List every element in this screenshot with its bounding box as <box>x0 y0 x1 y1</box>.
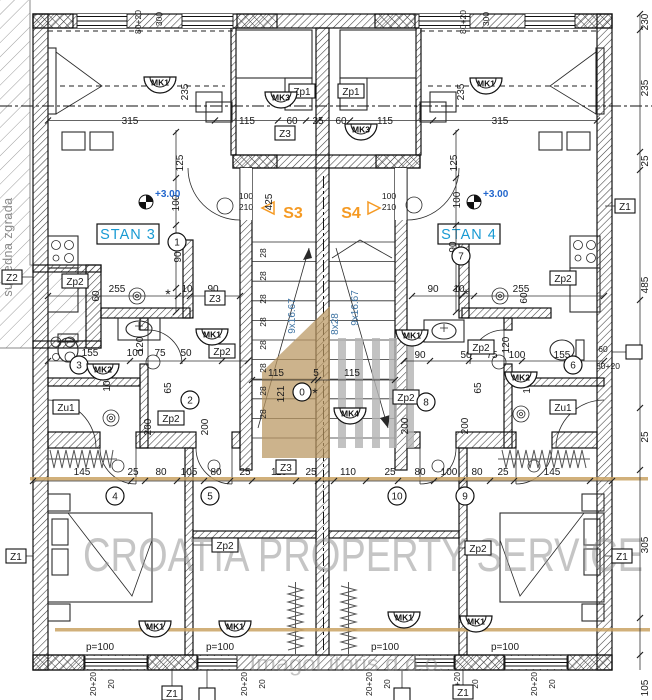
dim-label: 115 <box>377 116 393 127</box>
dim-label: 235 <box>180 83 191 100</box>
tag-text: Zu1 <box>554 403 572 414</box>
circled-number: 1 <box>168 233 186 251</box>
dim-label: 25 <box>239 467 251 478</box>
stair-id-s3: S3 <box>283 205 303 222</box>
circled-number: 2 <box>181 391 199 409</box>
number-text: 4 <box>112 492 118 503</box>
dim-label: 305 <box>640 536 651 553</box>
dim-label: 50 <box>180 348 192 359</box>
tag-text: Z2 <box>6 273 18 284</box>
dim-label: 200 <box>400 417 411 434</box>
dim-label: 9x16.67 <box>350 290 361 326</box>
tag-text: Zp2 <box>216 541 234 552</box>
boxed-label: Z3 <box>205 291 225 305</box>
tag-text: Zp2 <box>554 274 572 285</box>
dim-label: 200 <box>200 418 211 435</box>
circled-number: 6 <box>564 356 582 374</box>
number-text: 9 <box>462 492 468 503</box>
dim-label: 105 <box>640 679 651 696</box>
dim-label: 80+20 <box>596 361 620 371</box>
boxed-label: Zp2 <box>550 271 576 285</box>
mk-text: MK1 <box>477 79 495 89</box>
dim-label: 145 <box>544 467 561 478</box>
dim-label: 125 <box>175 154 186 171</box>
tag-text: Z3 <box>209 294 221 305</box>
dim-label: 28 <box>258 271 268 281</box>
boxed-label: Zp1 <box>338 84 364 98</box>
dim-label: 210 <box>239 202 253 212</box>
tag-text: Z1 <box>619 202 631 213</box>
dim-label: 28 <box>258 248 268 258</box>
tag-text: Zp2 <box>213 347 231 358</box>
boxed-label: Z3 <box>276 460 296 474</box>
mk-text: MK3 <box>352 125 370 135</box>
mk-text: MK4 <box>341 409 359 419</box>
level-text: +3.00 <box>483 189 509 200</box>
number-text: 8 <box>423 398 429 409</box>
dim-label: 80 <box>210 467 222 478</box>
circled-number: 4 <box>106 487 124 505</box>
watermark-sub: ImagoLitoris d.o.o. <box>250 651 445 676</box>
dim-label: 25 <box>384 467 396 478</box>
dim-label: 200 <box>460 417 471 434</box>
door-opening <box>395 168 407 220</box>
dim-label: 9x16.67 <box>287 298 298 334</box>
boxed-label: Zp2 <box>212 538 238 552</box>
boxed-label: Z1 <box>162 686 182 700</box>
porch-wall-left <box>231 28 236 155</box>
mk-text: MK1 <box>151 78 169 88</box>
circled-number: 3 <box>70 356 88 374</box>
number-text: 0 <box>299 388 305 399</box>
boxed-label: Z1 <box>612 549 632 563</box>
dim-label: 120 <box>501 336 512 353</box>
dim-label: 115 <box>239 116 255 127</box>
tag-text: Zp2 <box>472 343 490 354</box>
dim-label: 230 <box>640 13 651 30</box>
dim-label: 485 <box>640 276 651 293</box>
dim-label: 80 <box>155 467 167 478</box>
number-text: 10 <box>391 492 403 503</box>
dim-label: 28 <box>258 409 268 419</box>
dim-label: 100 <box>452 191 463 208</box>
leader-square <box>626 345 642 359</box>
number-text: 7 <box>458 252 464 263</box>
dim-label: 300 <box>154 12 164 26</box>
floor-plan-drawing: STAN 3 STAN 4 S3 S4 susjedna zgrada CROA… <box>0 0 652 700</box>
dim-label: 10 <box>102 380 113 392</box>
dim-label: 10 <box>181 284 193 295</box>
dim-label: 5 <box>313 368 319 379</box>
number-text: 5 <box>207 492 213 503</box>
dim-label: 210 <box>382 202 396 212</box>
dim-label: 20 <box>106 679 116 689</box>
tag-text: Z1 <box>616 552 628 563</box>
dim-label: 8x28 <box>330 313 341 335</box>
unit-label-stan4: STAN 4 <box>441 227 497 243</box>
dim-label: 100 <box>441 467 458 478</box>
mk-text: MK1 <box>203 330 221 340</box>
tag-text: Z3 <box>279 129 291 140</box>
stair-id-s4: S4 <box>341 205 361 222</box>
dim-label: 28 <box>258 340 268 350</box>
dim-label: 60 <box>519 292 530 304</box>
tag-text: Zp2 <box>66 277 84 288</box>
dim-label: 80+20 <box>133 10 143 34</box>
dim-label: 25 <box>312 116 324 127</box>
dim-label: 80 <box>414 467 426 478</box>
leader-square <box>394 688 410 700</box>
circled-number: 9 <box>456 487 474 505</box>
boxed-label: Z2 <box>2 270 22 284</box>
dim-label: * <box>312 385 318 401</box>
tag-text: Zu1 <box>57 403 75 414</box>
dim-label: 20 <box>547 679 557 689</box>
circled-number: 7 <box>452 247 470 265</box>
boxed-label: Zp2 <box>158 411 184 425</box>
watermark-main: CROATIA PROPERTY SERVICE <box>83 528 643 581</box>
dim-label: 315 <box>122 116 139 127</box>
mk-text: MK1 <box>146 622 164 632</box>
dim-label: 20+20 <box>239 672 249 696</box>
boxed-label: Zp2 <box>393 390 419 404</box>
boxed-label: Zu1 <box>550 400 576 414</box>
boxed-label: Zp2 <box>209 344 235 358</box>
tag-text: Z1 <box>10 552 22 563</box>
dim-label: 28 <box>258 386 268 396</box>
dim-label: 315 <box>492 116 509 127</box>
mk-text: MK3 <box>272 93 290 103</box>
mk-text: MK1 <box>226 622 244 632</box>
boxed-label: Zp2 <box>465 541 491 555</box>
dim-label: 25 <box>305 467 317 478</box>
dim-label: 125 <box>449 154 460 171</box>
dim-label: 90 <box>427 284 439 295</box>
boxed-label: Zp2 <box>468 340 494 354</box>
dim-label: 20+20 <box>88 672 98 696</box>
dim-label: 235 <box>640 79 651 96</box>
level-text: +3.00 <box>155 189 181 200</box>
circled-number: 8 <box>417 393 435 411</box>
dim-label: 80 <box>471 467 483 478</box>
dim-label: p=100 <box>371 642 400 653</box>
boxed-label: Z1 <box>6 549 26 563</box>
dim-label: 25 <box>640 155 651 167</box>
dim-label: 20+20 <box>364 672 374 696</box>
dim-label: p=100 <box>206 642 235 653</box>
boxed-label: Z3 <box>275 126 295 140</box>
dim-label: p=100 <box>491 642 520 653</box>
dim-label: 75 <box>154 348 166 359</box>
dim-label: 115 <box>268 368 284 379</box>
dim-label: 105 <box>181 467 198 478</box>
dim-label: 115 <box>344 368 360 379</box>
dim-label: 60 <box>91 290 102 302</box>
porch-wall-right <box>416 28 421 155</box>
tag-text: Zp2 <box>469 544 487 555</box>
boxed-label: Z1 <box>615 199 635 213</box>
dim-label: 100 <box>382 191 396 201</box>
dim-label: 200 <box>143 418 154 435</box>
dim-label: 60 <box>598 344 608 354</box>
dim-label: 65 <box>163 382 174 394</box>
boxed-label: Z1 <box>453 685 473 699</box>
dim-label: 145 <box>74 467 91 478</box>
dim-label: 90 <box>173 251 184 263</box>
leader-square <box>199 688 215 700</box>
dim-label: 110 <box>340 467 356 478</box>
circled-number: 0 <box>293 383 311 401</box>
dim-label: 60 <box>286 116 298 127</box>
unit-label-stan3: STAN 3 <box>100 227 156 243</box>
dim-label: p=100 <box>86 642 115 653</box>
dim-label: 255 <box>109 284 126 295</box>
dim-label: 65 <box>473 382 484 394</box>
number-text: 1 <box>174 238 180 249</box>
tag-text: Zp2 <box>162 414 180 425</box>
tag-text: Zp2 <box>397 393 415 404</box>
mk-text: MK1 <box>395 613 413 623</box>
number-text: 3 <box>76 361 82 372</box>
dim-label: 28 <box>258 363 268 373</box>
boxed-label: Zp2 <box>62 274 88 288</box>
tag-text: Zp1 <box>342 87 360 98</box>
dim-label: 121 <box>276 385 287 402</box>
floor-plan-page: STAN 3 STAN 4 S3 S4 susjedna zgrada CROA… <box>0 0 652 700</box>
circled-number: 5 <box>201 487 219 505</box>
dim-label: 20 <box>382 679 392 689</box>
number-text: 2 <box>187 396 193 407</box>
mk-text: MK2 <box>94 365 112 375</box>
dim-label: * <box>463 286 469 302</box>
dim-label: 25 <box>497 467 509 478</box>
dim-label: 100 <box>239 191 253 201</box>
dim-label: 90 <box>414 350 426 361</box>
mk-text: MK1 <box>467 617 485 627</box>
dim-label: 425 <box>264 193 275 210</box>
dim-label: 20 <box>257 679 267 689</box>
dim-label: 28 <box>258 317 268 327</box>
dim-label: 300 <box>481 12 491 26</box>
boxed-label: Zu1 <box>53 400 79 414</box>
mk-text: MK2 <box>512 373 530 383</box>
dim-label: 25 <box>640 431 651 443</box>
circled-number: 10 <box>388 487 406 505</box>
dim-label: 25 <box>127 467 139 478</box>
dim-label: 120 <box>135 336 146 353</box>
dim-label: * <box>165 286 171 302</box>
dim-label: 80+20 <box>458 10 468 34</box>
tag-text: Z3 <box>280 463 292 474</box>
dim-label: 235 <box>456 83 467 100</box>
tag-text: Z1 <box>457 688 469 699</box>
number-text: 6 <box>570 361 576 372</box>
tag-text: Z1 <box>166 689 178 700</box>
dim-label: 20+20 <box>529 672 539 696</box>
mk-text: MK1 <box>403 331 421 341</box>
dim-label: 28 <box>258 294 268 304</box>
